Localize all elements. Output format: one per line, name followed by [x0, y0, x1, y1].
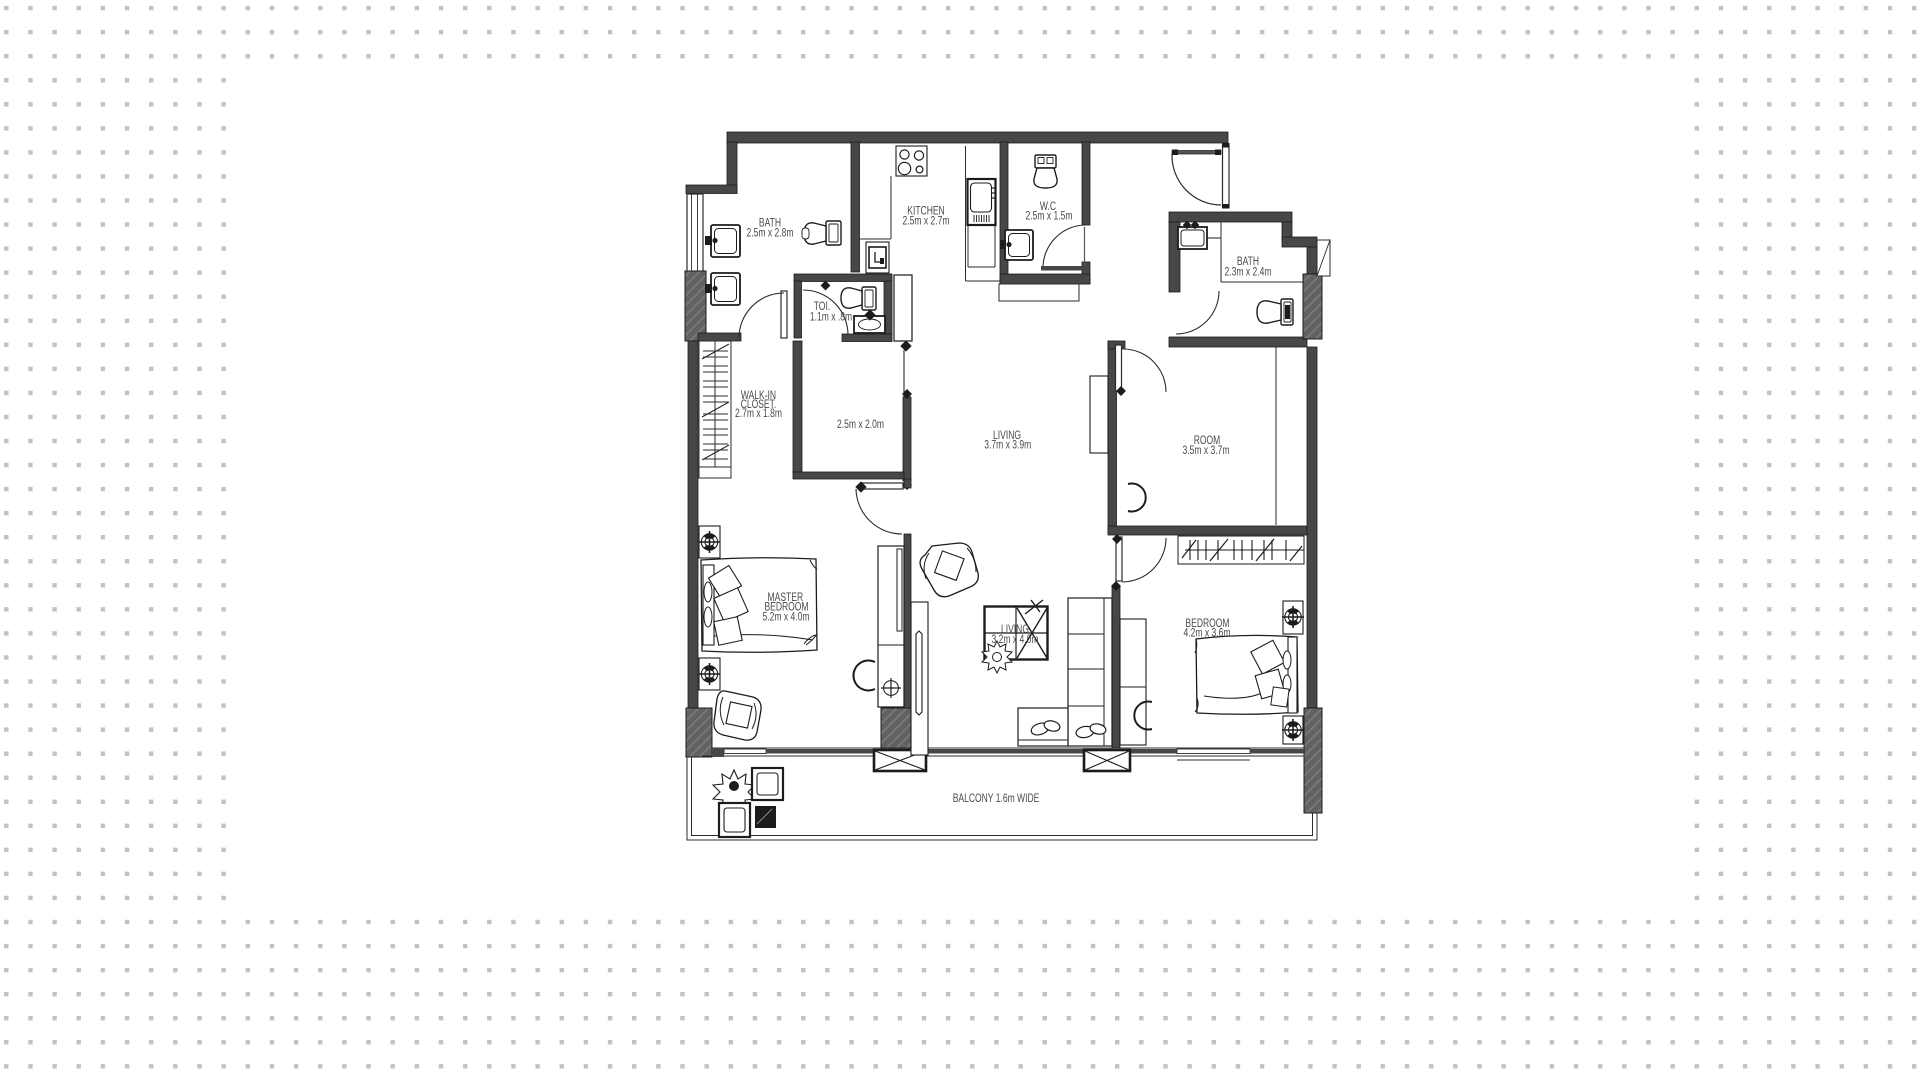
svg-text:2.5m x 2.0m: 2.5m x 2.0m	[837, 419, 884, 432]
svg-text:1.1m x .8m: 1.1m x .8m	[810, 311, 852, 324]
svg-text:4.2m x 3.6m: 4.2m x 3.6m	[1184, 627, 1231, 640]
svg-text:BALCONY 1.6m WIDE: BALCONY 1.6m WIDE	[953, 793, 1040, 806]
svg-text:2.5m x 2.8m: 2.5m x 2.8m	[747, 227, 794, 240]
svg-text:2.5m x 1.5m: 2.5m x 1.5m	[1026, 210, 1073, 223]
svg-text:3.5m x 3.7m: 3.5m x 3.7m	[1183, 445, 1230, 458]
svg-text:5.2m x 4.0m: 5.2m x 4.0m	[763, 611, 810, 624]
svg-text:3.2m x 4.0m: 3.2m x 4.0m	[992, 634, 1039, 647]
svg-text:2.3m x 2.4m: 2.3m x 2.4m	[1225, 266, 1272, 279]
svg-text:3.7m x 3.9m: 3.7m x 3.9m	[984, 439, 1031, 452]
svg-text:2.7m x 1.8m: 2.7m x 1.8m	[735, 408, 782, 421]
svg-text:2.5m x 2.7m: 2.5m x 2.7m	[903, 215, 950, 228]
